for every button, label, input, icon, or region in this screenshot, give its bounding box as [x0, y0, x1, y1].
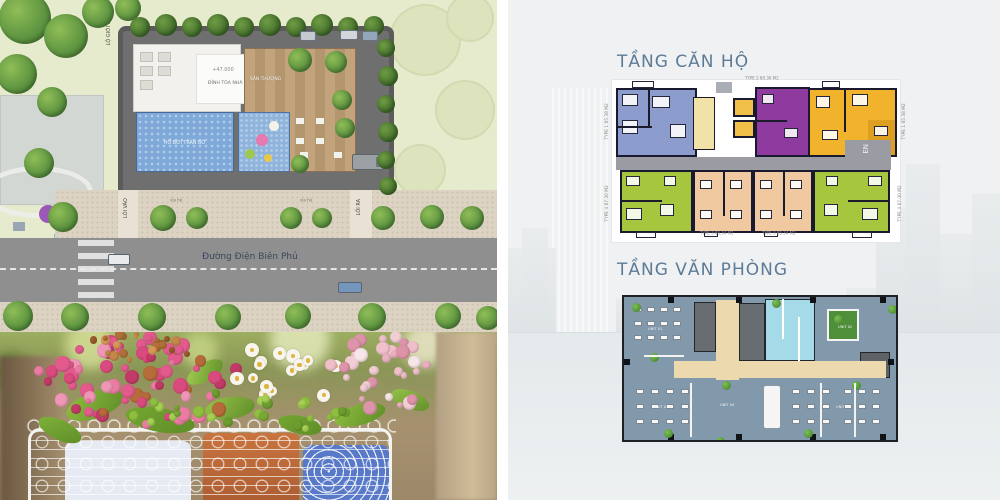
tree — [0, 54, 37, 94]
rooftop-equipment — [158, 66, 171, 76]
room-furniture — [700, 210, 712, 219]
office-plant — [722, 381, 731, 390]
balcony — [822, 81, 840, 88]
tree — [476, 306, 497, 330]
desk — [872, 419, 880, 424]
flower-dot — [137, 397, 148, 408]
room-furniture — [862, 208, 878, 220]
flower-dot — [115, 332, 125, 340]
daisy-center — [290, 368, 294, 372]
wire-basket — [28, 428, 392, 500]
room-furniture — [816, 96, 830, 108]
street-name: Đường Điện Biên Phủ — [120, 252, 380, 262]
crosswalk — [78, 240, 114, 300]
skyline-building — [522, 228, 548, 332]
daisy-center — [250, 348, 254, 352]
interior-wall — [755, 120, 787, 122]
flower-dot — [369, 366, 379, 376]
flower-dot — [147, 418, 155, 426]
structural-column — [668, 297, 674, 303]
office-core-room — [694, 302, 716, 352]
flower-dot — [169, 360, 175, 366]
skyline-building — [940, 234, 976, 332]
balcony-post — [436, 332, 497, 500]
desk — [844, 389, 852, 394]
rooftop-equipment — [140, 52, 153, 62]
room-furniture — [826, 176, 838, 186]
infinity-pool: HỒ BƠI TRÀN BỜ — [136, 112, 234, 172]
tree — [44, 14, 88, 58]
office-plant — [664, 429, 673, 438]
desk — [636, 389, 644, 394]
sidewalk-label-1: vỉa hè — [170, 198, 182, 203]
daisy-flower — [248, 373, 258, 383]
tree — [288, 48, 312, 72]
apt-right-bottom-side-label: TYPE 4 87.30 M2 — [898, 185, 903, 221]
desk — [792, 419, 800, 424]
elevator-1 — [733, 98, 755, 117]
flower-dot — [64, 373, 75, 384]
daisy-center — [235, 376, 239, 380]
office-partition — [820, 383, 822, 437]
desk — [647, 307, 655, 312]
corridor — [616, 157, 881, 170]
terrace-table — [296, 138, 304, 144]
terrace-table — [316, 138, 324, 144]
daisy-center — [278, 351, 282, 355]
flower-dot — [382, 353, 391, 362]
tree — [259, 14, 281, 36]
balcony-flowers-photo — [0, 332, 497, 500]
flower-dot — [75, 365, 83, 373]
flower-dot — [134, 335, 138, 339]
office-plant — [632, 303, 641, 312]
interior-wall — [844, 88, 846, 132]
building-name: ĐỈNH TÒA NHÀ — [208, 80, 238, 85]
desk — [634, 321, 642, 326]
desk — [681, 404, 689, 409]
desk — [660, 335, 668, 340]
flower-dot — [302, 425, 309, 432]
structural-column — [736, 297, 742, 303]
daisy-center — [257, 362, 261, 366]
stair-label: EN — [862, 144, 870, 154]
stair-core — [693, 97, 715, 150]
flower-dot — [100, 360, 113, 373]
daisy-flower — [254, 359, 265, 370]
road-centerline — [0, 268, 497, 270]
room-furniture — [784, 128, 798, 138]
flower-dot — [413, 368, 419, 374]
flower-dot — [359, 396, 365, 402]
parked-car — [340, 30, 358, 40]
structural-column — [880, 434, 886, 440]
desk — [872, 389, 880, 394]
tree — [37, 87, 67, 117]
tree — [215, 304, 241, 330]
structural-column — [736, 434, 742, 440]
desk — [647, 321, 655, 326]
faded-tree — [435, 80, 495, 140]
tree — [138, 303, 166, 331]
flower-dot — [90, 336, 98, 344]
skyline-tower — [552, 88, 612, 332]
parked-car — [362, 31, 378, 41]
office-elevator-block — [739, 303, 765, 361]
room-furniture — [762, 94, 774, 104]
restroom-partition — [782, 299, 784, 339]
flower-dot — [84, 407, 94, 417]
desk — [844, 419, 852, 424]
tree — [150, 205, 176, 231]
apartment-floor-plan: EN TYPE 2 80.36 M2 TYPE 3 85.34 M2 TYPE … — [612, 80, 900, 242]
office-floor-plan: UNIT 01UNIT 02UNIT 03UNIT 04UNIT 05 — [622, 295, 898, 442]
desk — [660, 307, 668, 312]
flower-dot — [75, 345, 84, 354]
desk — [792, 404, 800, 409]
flower-dot — [396, 345, 410, 359]
restroom-partition — [798, 317, 800, 361]
tree — [130, 17, 150, 37]
daisy-center — [306, 358, 310, 362]
desk — [872, 404, 880, 409]
apt-right-top-side-label: TYPE 1 85.38 M2 — [902, 103, 907, 139]
office-plant — [716, 437, 725, 442]
service-block — [716, 82, 732, 93]
tree — [358, 303, 386, 331]
room-furniture — [664, 176, 676, 186]
terrace-table — [316, 118, 324, 124]
room-furniture — [670, 124, 686, 138]
flower-dot — [327, 414, 333, 420]
skyline-building — [972, 194, 1000, 332]
flower-dot — [394, 367, 403, 376]
daisy-flower — [230, 372, 243, 385]
tree — [371, 206, 395, 230]
exit-label: LỐI RA — [356, 199, 362, 215]
balcony — [636, 232, 656, 238]
tree — [3, 301, 33, 331]
apt-bottom-left-label: TYPE 3 85.34 M2 — [700, 231, 734, 236]
office-corridor-horizontal — [674, 361, 886, 378]
tree — [280, 207, 302, 229]
office-meeting-table — [763, 385, 781, 429]
flower-dot — [408, 356, 421, 369]
flower-dot — [119, 349, 128, 358]
flower-dot — [223, 417, 233, 427]
tree — [435, 303, 461, 329]
pool-decoration — [245, 149, 255, 159]
desk — [858, 389, 866, 394]
flower-dot — [207, 413, 216, 422]
tree — [48, 202, 78, 232]
desk — [681, 419, 689, 424]
apt-top-unit-label: TYPE 2 80.36 M2 — [745, 76, 779, 81]
skyline-building — [906, 164, 940, 332]
structural-column — [624, 359, 630, 365]
tree — [291, 155, 309, 173]
flower-dot — [422, 361, 431, 370]
flower-dot — [113, 341, 121, 349]
flower-dot — [169, 347, 175, 353]
pool-decoration — [264, 154, 272, 162]
brochure-image: +47.000 ĐỈNH TÒA NHÀ SÂN THƯỢNG HỒ BƠI T… — [0, 0, 1000, 500]
room-furniture — [790, 210, 802, 219]
flower-dot — [338, 407, 347, 416]
desk — [673, 321, 681, 326]
flower-dot — [55, 393, 68, 406]
flower-dot — [143, 366, 158, 381]
desk — [822, 389, 830, 394]
road: Đường Điện Biên Phủ — [0, 238, 497, 302]
room-furniture — [660, 204, 674, 216]
balcony — [632, 81, 654, 88]
tree — [377, 95, 395, 113]
office-unit-label: UNIT 03 — [654, 405, 668, 409]
desk — [673, 307, 681, 312]
daisy-flower — [317, 389, 330, 402]
flower-dot — [363, 401, 377, 415]
balcony — [852, 232, 872, 238]
desk — [822, 419, 830, 424]
room-furniture — [760, 210, 772, 219]
flower-dot — [160, 365, 173, 378]
tree — [312, 208, 332, 228]
desk — [673, 335, 681, 340]
desk — [660, 321, 668, 326]
tree — [460, 206, 484, 230]
room-furniture — [852, 94, 868, 106]
elevator-2 — [733, 120, 755, 138]
room-furniture — [760, 180, 772, 189]
tree — [378, 66, 398, 86]
structural-column — [888, 359, 894, 365]
car — [108, 254, 130, 265]
pool-decoration — [269, 121, 279, 131]
daisy-center — [297, 363, 301, 367]
room-furniture — [626, 208, 642, 220]
flower-dot — [99, 408, 108, 417]
flower-dot — [262, 395, 270, 403]
flower-dot — [121, 397, 129, 405]
tree — [378, 122, 398, 142]
office-plant — [772, 299, 781, 308]
flower-dot — [360, 384, 368, 392]
interior-wall — [620, 200, 662, 202]
room-furniture — [868, 176, 882, 186]
office-unit-label: UNIT 02 — [838, 325, 852, 329]
office-unit-label: UNIT 04 — [720, 403, 734, 407]
building-roof-label: +47.000 ĐỈNH TÒA NHÀ — [196, 54, 250, 104]
flower-dot — [299, 400, 307, 408]
room-furniture — [730, 180, 742, 189]
rooftop-equipment — [140, 80, 153, 90]
flower-dot — [55, 356, 71, 372]
tree — [24, 148, 54, 178]
flower-dot — [150, 398, 159, 407]
desk — [681, 389, 689, 394]
apt-bottom-right-label: TYPE 3 85.34 M2 — [762, 231, 796, 236]
tree — [377, 151, 395, 169]
rooftop-equipment — [158, 52, 171, 62]
flower-dot — [174, 345, 184, 355]
desk — [807, 419, 815, 424]
tree — [379, 177, 397, 195]
office-partition — [854, 383, 856, 437]
tree — [332, 90, 352, 110]
flower-dot — [34, 366, 44, 376]
flower-dot — [407, 394, 418, 405]
flower-dot — [385, 393, 393, 401]
daisy-center — [251, 376, 255, 380]
desk — [647, 335, 655, 340]
pool-label: HỒ BƠI TRÀN BỜ — [164, 139, 206, 144]
flower-dot — [85, 398, 91, 404]
flower-dot — [259, 411, 269, 421]
interior-wall — [616, 126, 652, 128]
tree — [186, 207, 208, 229]
entrance-label: LỐI VÀO — [123, 198, 129, 218]
offices-title: TẦNG VĂN PHÒNG — [617, 260, 788, 280]
interior-wall — [723, 170, 725, 216]
flower-dot — [208, 371, 221, 384]
rooftop-equipment — [140, 66, 153, 76]
flower-dot — [307, 415, 314, 422]
desk — [792, 389, 800, 394]
office-plant — [804, 429, 813, 438]
office-unit-label: UNIT 05 — [836, 405, 850, 409]
structural-column — [880, 297, 886, 303]
tree — [207, 14, 229, 36]
office-plant — [834, 315, 843, 324]
terrace-table — [334, 152, 342, 158]
tree — [377, 39, 395, 57]
desk — [666, 419, 674, 424]
parked-car — [300, 31, 316, 41]
room-furniture — [822, 130, 838, 140]
apt-left-top-side-label: TYPE 1 85.38 M2 — [605, 103, 610, 139]
structural-column — [810, 297, 816, 303]
desk — [858, 419, 866, 424]
interior-wall — [648, 88, 650, 128]
panel-divider — [497, 0, 508, 500]
apt-left-bottom-side-label: TYPE 4 87.30 M2 — [605, 185, 610, 221]
office-unit-label: UNIT 01 — [648, 327, 662, 331]
daisy-center — [264, 384, 268, 388]
room-furniture — [730, 210, 742, 219]
office-restrooms — [765, 299, 815, 361]
tree — [61, 303, 89, 331]
room-furniture — [626, 176, 640, 186]
room-furniture — [622, 94, 638, 106]
faded-tree — [394, 144, 446, 196]
tree — [420, 205, 444, 229]
playground-equipment — [13, 222, 25, 231]
terrace-label: SÂN THƯỢNG — [250, 76, 283, 81]
car — [338, 282, 362, 293]
pool-decoration — [256, 134, 268, 146]
terrace-table — [296, 118, 304, 124]
desk — [634, 335, 642, 340]
tree — [234, 17, 254, 37]
desk — [666, 389, 674, 394]
flower-dot — [343, 374, 350, 381]
flower-dot — [127, 357, 133, 363]
room-furniture — [824, 204, 838, 216]
flower-dot — [171, 336, 181, 346]
room-furniture — [652, 96, 670, 108]
desk — [858, 404, 866, 409]
desk — [807, 404, 815, 409]
interior-wall — [783, 170, 785, 216]
flower-dot — [212, 389, 221, 398]
building-elevation: +47.000 — [207, 67, 239, 73]
office-partition — [644, 355, 684, 357]
tree — [182, 17, 202, 37]
flower-dot — [145, 335, 153, 343]
flower-dot — [181, 391, 191, 401]
daisy-flower — [245, 343, 259, 357]
interior-wall — [848, 200, 890, 202]
desk — [651, 419, 659, 424]
flower-dot — [125, 370, 139, 384]
tree — [335, 118, 355, 138]
desk — [807, 389, 815, 394]
daisy-center — [291, 354, 295, 358]
flower-dot — [155, 381, 165, 391]
flower-dot — [148, 346, 157, 355]
daisy-flower — [273, 347, 286, 360]
floor-plans-panel: TẦNG CĂN HỘ EN TYPE 2 80.36 M2 TYPE 3 85… — [508, 0, 1000, 500]
apartments-title: TẦNG CĂN HỘ — [617, 52, 749, 72]
faded-tree — [446, 0, 494, 42]
tree — [325, 51, 347, 73]
desk — [636, 419, 644, 424]
desk — [822, 404, 830, 409]
flower-dot — [121, 364, 129, 372]
room-furniture — [700, 180, 712, 189]
flower-dot — [354, 348, 368, 362]
tree — [155, 14, 177, 36]
daisy-center — [322, 393, 326, 397]
room-furniture — [790, 180, 802, 189]
desk — [636, 404, 644, 409]
desk — [651, 389, 659, 394]
flower-dot — [339, 362, 350, 373]
room-furniture — [874, 126, 888, 136]
tree — [285, 303, 311, 329]
basket-wire-pattern — [31, 431, 389, 500]
daisy-flower — [303, 355, 313, 365]
site-plan: +47.000 ĐỈNH TÒA NHÀ SÂN THƯỢNG HỒ BƠI T… — [0, 0, 497, 332]
office-partition — [690, 383, 692, 437]
sidewalk-label-2: vỉa hè — [300, 198, 312, 203]
office-plant — [888, 305, 897, 314]
